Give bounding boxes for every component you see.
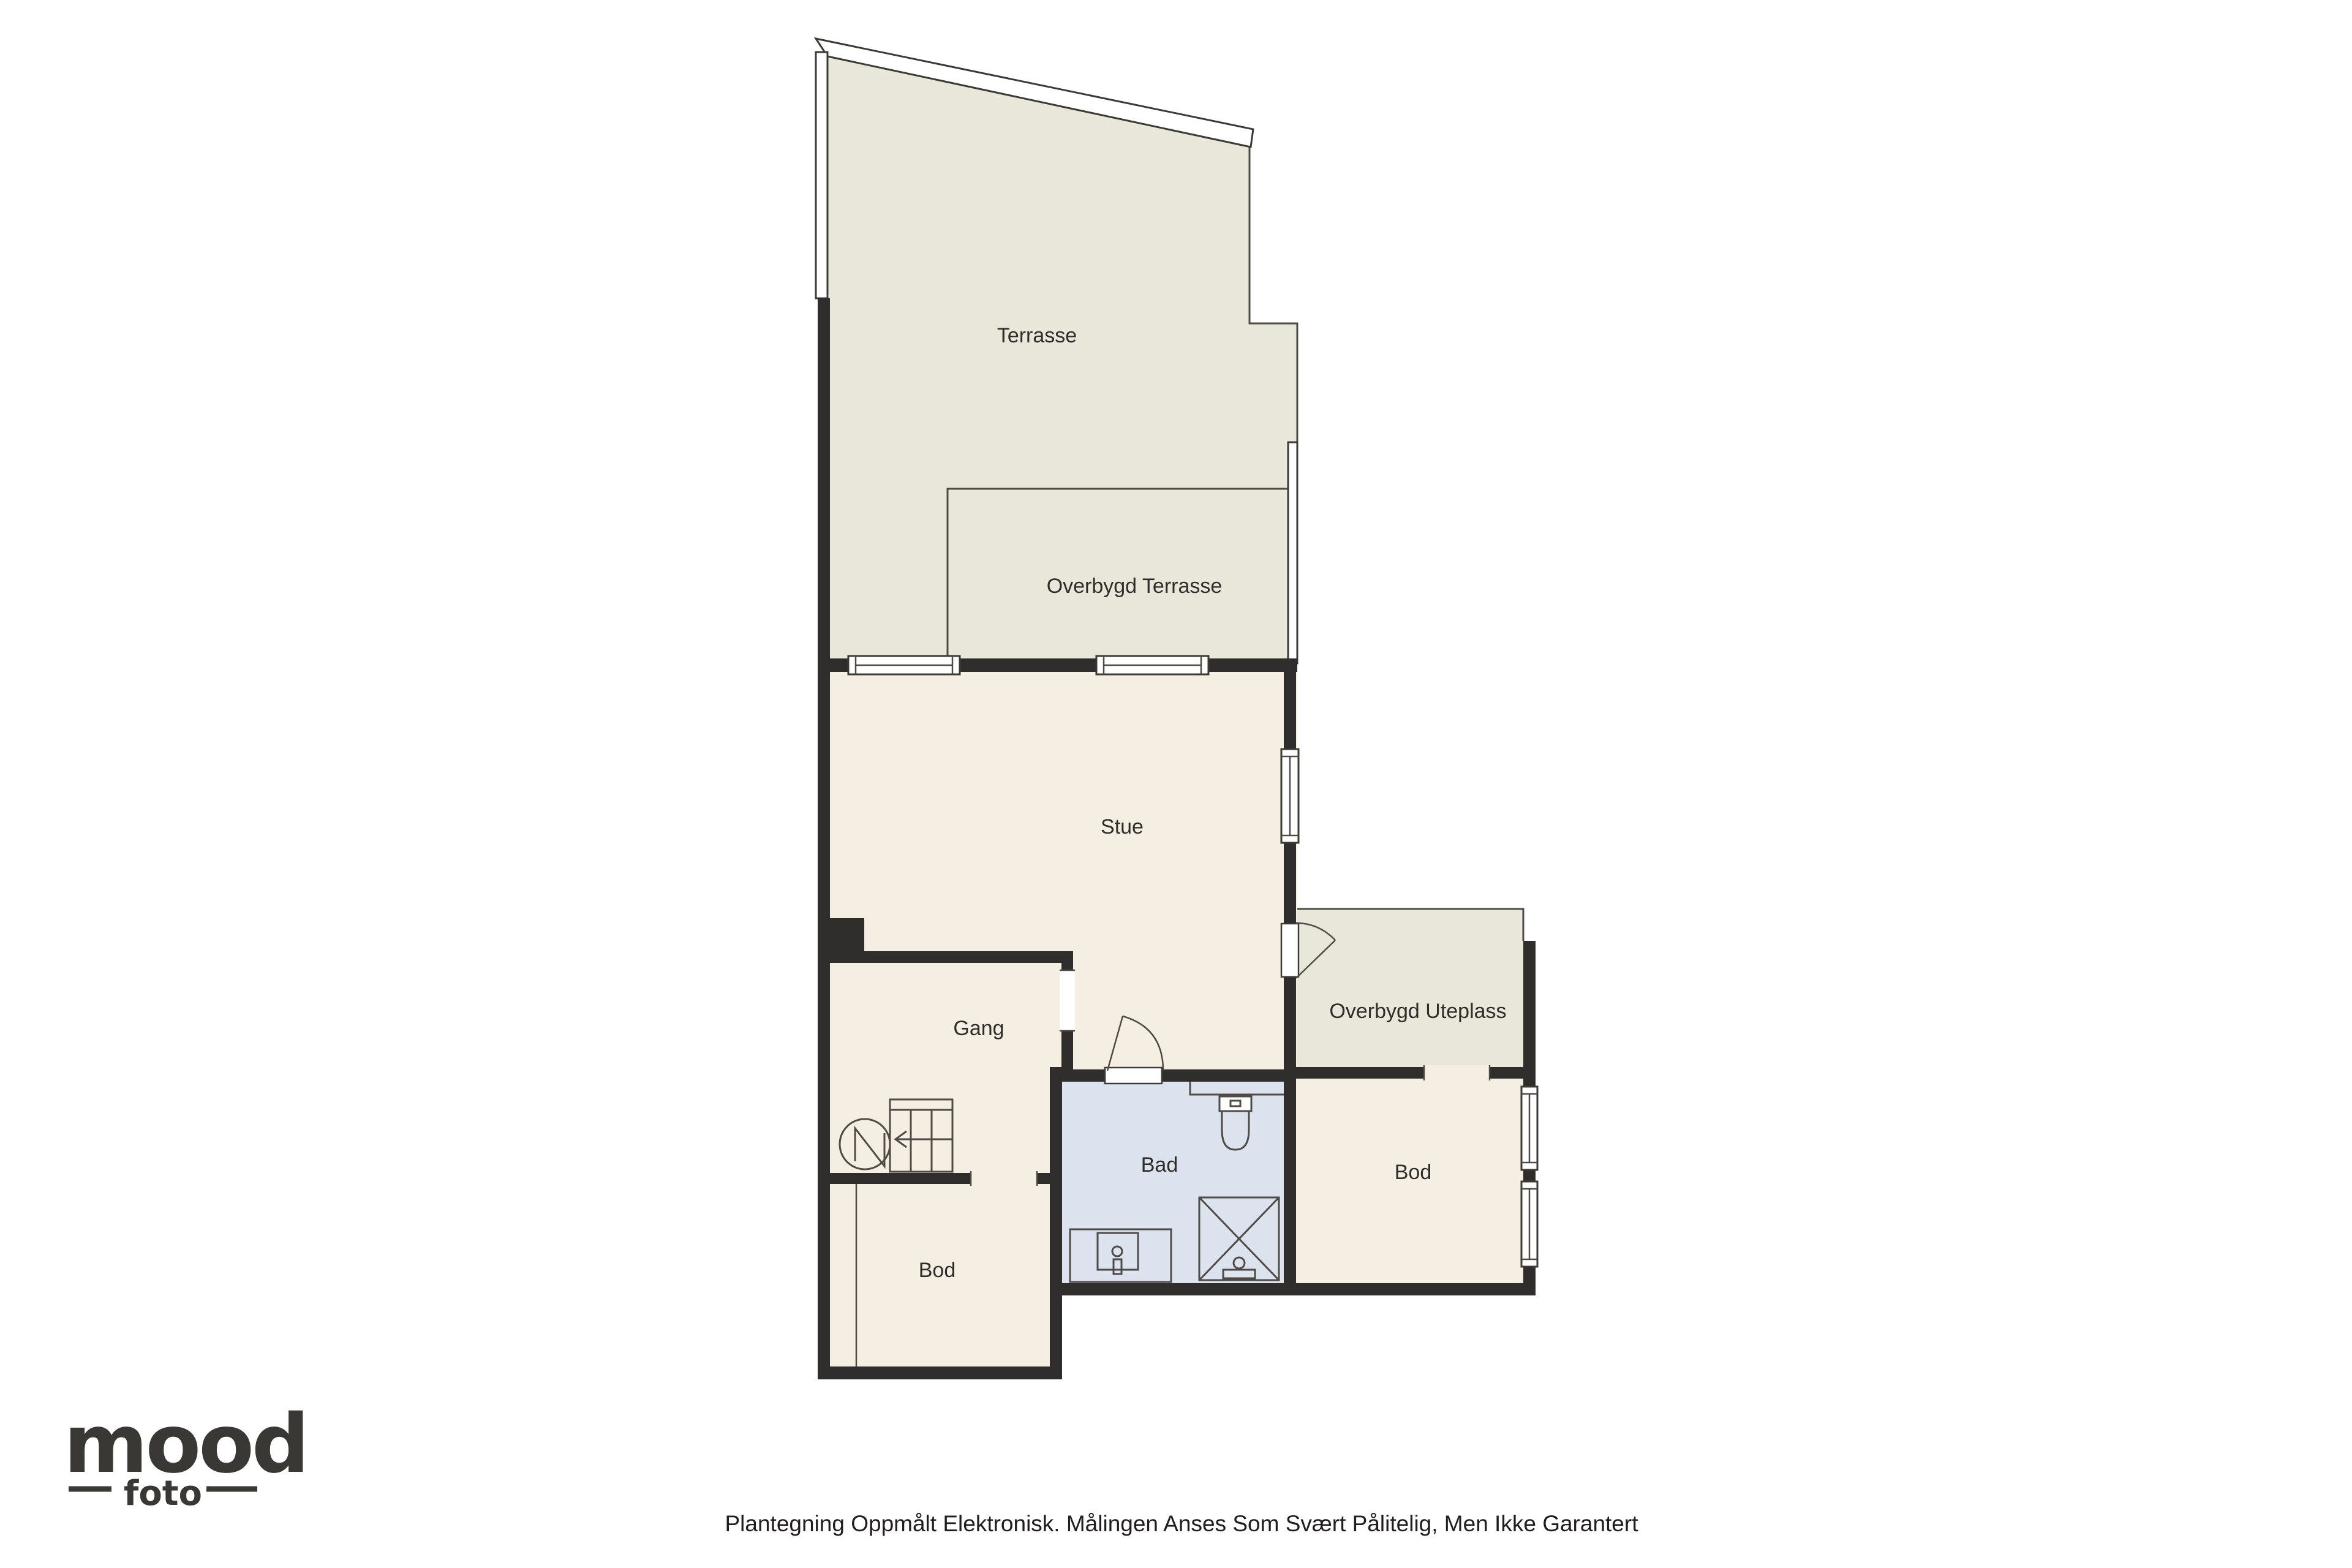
wall-patio-right — [1523, 941, 1536, 1079]
opening-patio-to-storage — [1424, 1065, 1490, 1080]
covered-patio-area — [1296, 909, 1523, 1067]
window-living-top-left — [848, 656, 960, 674]
label-gang: Gang — [953, 1017, 1004, 1040]
window-living-right — [1281, 749, 1298, 843]
wall-patio-bottom — [1296, 1067, 1536, 1079]
label-stue: Stue — [1101, 815, 1144, 839]
label-bad: Bad — [1141, 1153, 1178, 1177]
wall-notch-living — [830, 918, 864, 951]
wall-storage-bottom — [818, 1366, 1062, 1379]
label-bod-bottom: Bod — [919, 1259, 956, 1282]
wall-exterior-left — [818, 298, 830, 1379]
wall-bath-bottom — [1050, 1283, 1536, 1295]
terrace-area — [824, 55, 1297, 665]
window-storage-right-upper — [1521, 1087, 1537, 1170]
railing-right — [1288, 442, 1297, 663]
label-overbygd-terrasse: Overbygd Terrasse — [1047, 575, 1223, 598]
label-overbygd-uteplass: Overbygd Uteplass — [1329, 1000, 1506, 1023]
floorplan-canvas: Terrasse Overbygd Terrasse Stue Gang Ove… — [0, 0, 2352, 1568]
opening-hall-to-storage — [971, 1171, 1037, 1186]
label-terrasse: Terrasse — [997, 324, 1077, 347]
window-storage-right-lower — [1521, 1182, 1537, 1267]
wall-hall-top — [830, 951, 1073, 963]
door-hall-to-living — [1060, 970, 1075, 1031]
floorplan-page: Terrasse Overbygd Terrasse Stue Gang Ove… — [0, 0, 2352, 1568]
label-bod-right: Bod — [1395, 1161, 1432, 1184]
logo-subtext: foto — [124, 1474, 202, 1513]
disclaimer-text: Plantegning Oppmålt Elektronisk. Målinge… — [725, 1511, 1639, 1536]
window-living-top-right — [1096, 656, 1208, 674]
railing-left — [816, 52, 827, 298]
wall-bath-top — [1050, 1069, 1296, 1082]
wall-mid-vertical — [1050, 1082, 1062, 1379]
